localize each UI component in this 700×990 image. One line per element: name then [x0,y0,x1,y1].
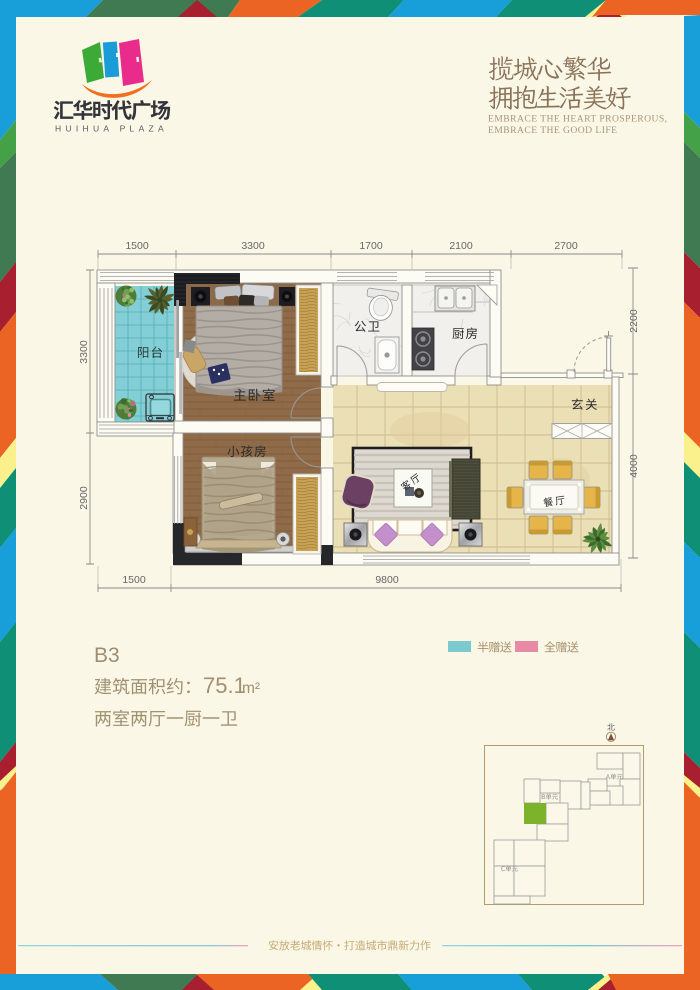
svg-text:4000: 4000 [628,454,640,478]
svg-text:2900: 2900 [78,486,90,510]
svg-text:2700: 2700 [554,240,578,252]
svg-text:B3: B3 [94,644,120,667]
svg-text:EMBRACE THE GOOD LIFE: EMBRACE THE GOOD LIFE [488,125,617,136]
svg-text:1500: 1500 [125,240,149,252]
svg-text:9800: 9800 [375,574,399,586]
svg-text:3300: 3300 [78,340,90,364]
svg-text:m²: m² [242,680,260,697]
svg-text:HUIHUA PLAZA: HUIHUA PLAZA [55,124,168,134]
svg-text:2200: 2200 [628,309,640,333]
svg-text:3300: 3300 [241,240,265,252]
svg-text:1700: 1700 [359,240,383,252]
svg-text:EMBRACE THE HEART PROSPEROUS,: EMBRACE THE HEART PROSPEROUS, [488,114,668,125]
svg-text:75.1: 75.1 [203,673,246,698]
svg-text:1500: 1500 [122,574,146,586]
svg-text:2100: 2100 [449,240,473,252]
